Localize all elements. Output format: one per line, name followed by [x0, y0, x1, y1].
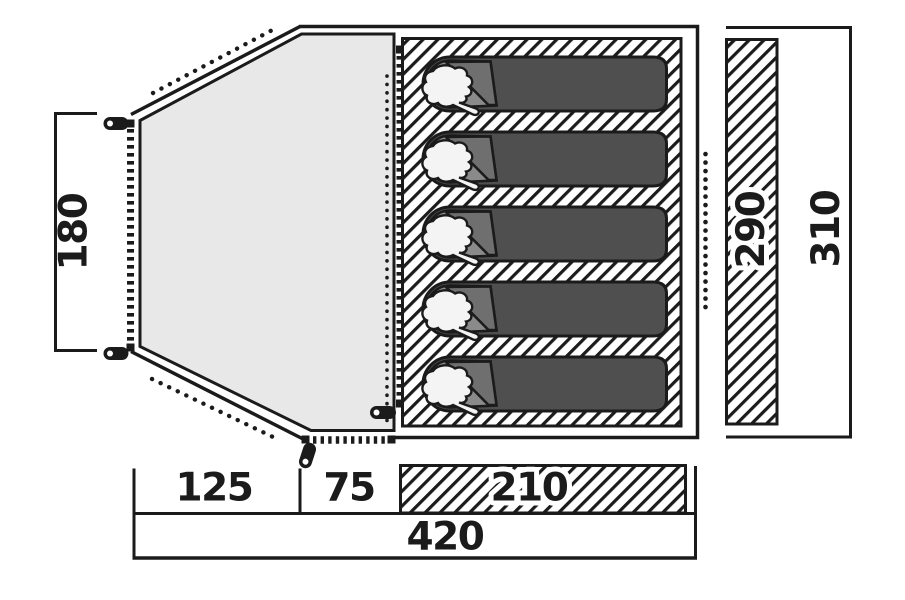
dim-label-420: 420 — [407, 515, 484, 560]
sleeping-bag-1 — [422, 57, 666, 115]
sleeping-bag-3 — [422, 207, 666, 265]
floorplan-svg: 180 290 310 125 75 210 420 — [0, 0, 905, 600]
dim-inner-depth: 290 — [727, 40, 778, 425]
zipper-end-stop — [127, 344, 135, 352]
zipper-end-stop — [302, 436, 310, 444]
tent-peg-icon-inner-door — [370, 406, 396, 419]
dim-label-290: 290 — [729, 191, 774, 268]
sleeping-bag-2 — [422, 132, 666, 190]
dim-label-310: 310 — [804, 190, 849, 267]
dim-label-75: 75 — [323, 466, 374, 511]
dim-label-210: 210 — [491, 466, 568, 511]
sleeping-bag-5 — [422, 357, 666, 415]
zipper-end-stop — [388, 436, 396, 444]
tent-peg-icon-top-left — [104, 117, 129, 130]
dim-label-125: 125 — [176, 466, 253, 511]
tent-peg-icon-bottom-left — [104, 347, 129, 360]
dim-label-180: 180 — [52, 193, 97, 270]
sleeping-cabin — [403, 39, 682, 427]
sleeping-bag-4 — [422, 282, 666, 340]
tent-floorplan-diagram: 180 290 310 125 75 210 420 — [0, 0, 905, 600]
